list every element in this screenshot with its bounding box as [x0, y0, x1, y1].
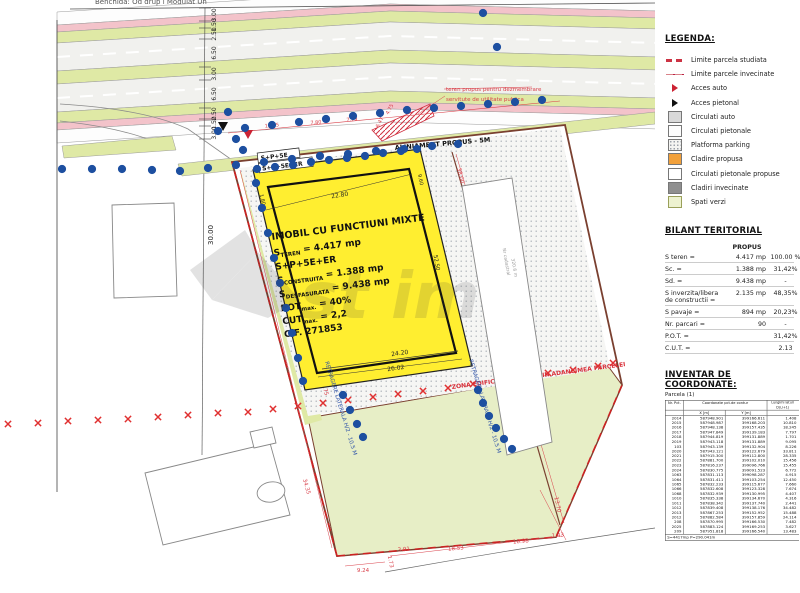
svg-text:6.50: 6.50	[211, 46, 218, 60]
svg-text:3.00: 3.00	[211, 67, 218, 81]
legend-item-label: Circulati pietonale	[691, 127, 751, 135]
coords-table: Nr. Pct. Coordonate pct.de contur Lungim…	[665, 400, 799, 541]
legend-item-label: Limite parcele invecinate	[691, 70, 774, 78]
legend-item: Circulati pietonale	[665, 124, 794, 138]
svg-text:6.50: 6.50	[211, 87, 218, 101]
legend-swatch-icon	[668, 111, 682, 123]
coords-subtitle: Parcela (1)	[665, 392, 794, 398]
legend-swatch-icon	[668, 168, 682, 180]
legend-item: Circulati pietonale propuse	[665, 167, 794, 181]
legend-item: Cladire propusa	[665, 152, 794, 166]
legend-item: Limite parcela studiata	[665, 53, 794, 67]
legend-item-label: Circulati auto	[691, 113, 735, 121]
bilant-row: S inverzita/libera de constructii = 2.13…	[665, 287, 794, 306]
legend-swatch-icon	[668, 153, 682, 165]
legend-item: Spati verzi	[665, 195, 794, 209]
bilant-row: Nr. parcari = 90 -	[665, 318, 794, 330]
bilant-rows: S teren = 4.417 mp 100.00 % Sc. = 1.388 …	[665, 251, 794, 354]
bilant-row: Sc. = 1.388 mp 31,42%	[665, 263, 794, 275]
legend-items: Limite parcela studiata Limite parcele i…	[665, 53, 794, 209]
legend-item-label: Limite parcela studiata	[691, 56, 767, 64]
legend-item-label: Acces pietonal	[691, 99, 739, 107]
legend-swatch-icon	[672, 99, 678, 107]
coords-rows: 2014587948.901 399166.6111.408 201558794…	[666, 416, 799, 534]
bilant-row: C.U.T. = 2.13	[665, 342, 794, 354]
sheet-title: Benchida: Od drup i Modulat Un	[95, 0, 207, 6]
site-plan-sheet: Benchida: Od drup i Modulat Un 3.00 1.50…	[0, 0, 800, 593]
bilant-row: S pavaje = 894 mp 20,23%	[665, 306, 794, 318]
svg-text:9.24: 9.24	[357, 568, 370, 574]
legend-swatch-icon	[666, 74, 684, 76]
legend-item: Platforma parking	[665, 138, 794, 152]
legend-swatch-icon	[668, 139, 682, 151]
bilant-header: PROPUS	[665, 244, 794, 251]
neighbor-building-left	[112, 203, 177, 298]
legend-item: Cladiri invecinate	[665, 181, 794, 195]
bilant-row: P.O.T. = 31,42%	[665, 330, 794, 342]
svg-text:2.50: 2.50	[211, 27, 218, 41]
legend-item-label: Circulati pietonale propuse	[691, 170, 780, 178]
legend-item: Acces auto	[665, 81, 794, 95]
legend-swatch-icon	[668, 182, 682, 194]
legend-item-label: Cladiri invecinate	[691, 184, 748, 192]
coords-row: 209587951.818 399166.54013.483	[666, 529, 799, 534]
legend-swatch-icon	[666, 59, 684, 62]
svg-text:st im: st im	[300, 260, 480, 334]
site-plan-drawing: Benchida: Od drup i Modulat Un 3.00 1.50…	[0, 0, 655, 593]
legend-title: LEGENDA:	[665, 34, 794, 44]
coords-footer: S=4417mp P=290.041m	[666, 534, 799, 540]
bilant-title: BILANT TERITORIAL	[665, 226, 794, 236]
svg-text:1.43: 1.43	[552, 532, 565, 539]
bilant-teritorial: BILANT TERITORIAL PROPUS S teren = 4.417…	[665, 226, 794, 354]
legend-item-label: Spati verzi	[691, 198, 726, 206]
bilant-row: S teren = 4.417 mp 100.00 %	[665, 251, 794, 263]
legend-item: Circulati auto	[665, 110, 794, 124]
legend-item: Acces pietonal	[665, 96, 794, 110]
inventar-coordonate: INVENTAR DE COORDONATE: Parcela (1) Nr. …	[665, 370, 794, 556]
legend-item-label: Acces auto	[691, 84, 727, 92]
coords-title: INVENTAR DE COORDONATE:	[665, 370, 794, 390]
svg-text:7.80: 7.80	[310, 120, 322, 127]
road-total-width: 30.00	[207, 225, 215, 245]
legend-item: Limite parcele invecinate	[665, 67, 794, 81]
legend-swatch-icon	[672, 84, 678, 92]
bilant-row: Sd. = 9.438 mp -	[665, 275, 794, 287]
legend-item-label: Platforma parking	[691, 141, 750, 149]
legend: LEGENDA: Limite parcela studiata Limite …	[665, 34, 794, 209]
dezmembrare-note-1: teren propus pentru dezmembrare	[446, 87, 542, 93]
legend-item-label: Cladire propusa	[691, 155, 743, 163]
info-panel: LEGENDA: Limite parcela studiata Limite …	[655, 0, 800, 593]
svg-text:3.91: 3.91	[398, 546, 411, 553]
legend-swatch-icon	[668, 125, 682, 137]
legend-swatch-icon	[668, 196, 682, 208]
